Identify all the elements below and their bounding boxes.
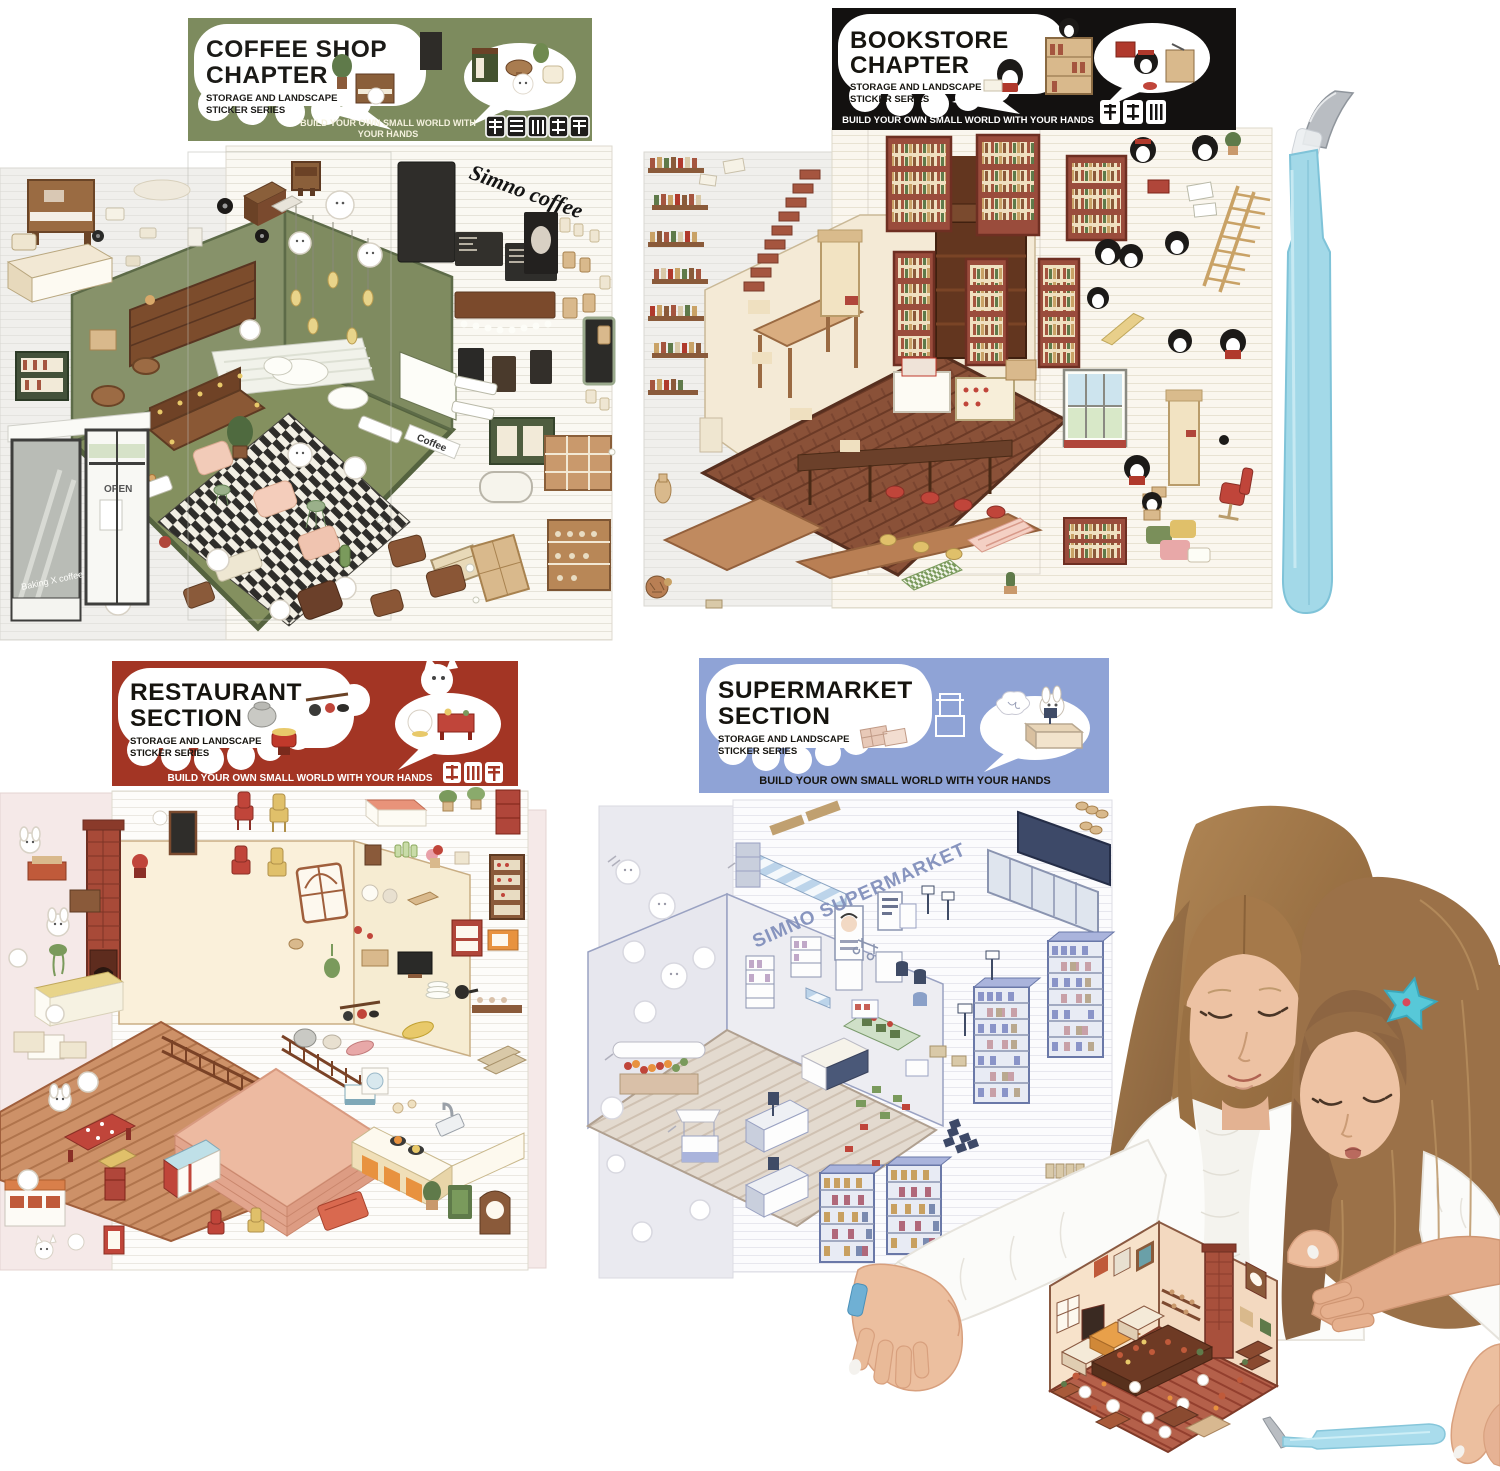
- svg-text:OPEN: OPEN: [104, 484, 132, 495]
- svg-text:STICKER SERIES: STICKER SERIES: [718, 746, 797, 757]
- svg-text:BUILD YOUR OWN SMALL WORLD WIT: BUILD YOUR OWN SMALL WORLD WITH YOUR HAN…: [842, 115, 1094, 126]
- svg-text:STORAGE AND LANDSCAPE: STORAGE AND LANDSCAPE: [206, 93, 337, 104]
- svg-text:CHAPTER: CHAPTER: [850, 52, 970, 79]
- svg-text:RESTAURANT: RESTAURANT: [130, 679, 302, 706]
- svg-text:BOOKSTORE: BOOKSTORE: [850, 27, 1009, 54]
- svg-text:BUILD YOUR OWN SMALL WORLD WIT: BUILD YOUR OWN SMALL WORLD WITH YOUR HAN…: [759, 775, 1051, 787]
- svg-text:SECTION: SECTION: [718, 703, 830, 730]
- svg-text:SECTION: SECTION: [130, 705, 242, 732]
- svg-text:STICKER SERIES: STICKER SERIES: [850, 94, 929, 105]
- svg-text:BUILD YOUR OWN SMALL WORLD WIT: BUILD YOUR OWN SMALL WORLD WITH: [300, 118, 476, 128]
- svg-text:STORAGE AND LANDSCAPE: STORAGE AND LANDSCAPE: [850, 82, 981, 93]
- svg-text:CHAPTER: CHAPTER: [206, 62, 328, 89]
- svg-text:SUPERMARKET: SUPERMARKET: [718, 677, 913, 704]
- svg-text:BUILD YOUR OWN SMALL WORLD WIT: BUILD YOUR OWN SMALL WORLD WITH YOUR HAN…: [168, 773, 433, 784]
- svg-text:STORAGE AND LANDSCAPE: STORAGE AND LANDSCAPE: [718, 734, 849, 745]
- svg-text:COFFEE SHOP: COFFEE SHOP: [206, 36, 387, 63]
- svg-text:STICKER SERIES: STICKER SERIES: [130, 748, 209, 759]
- svg-text:STICKER SERIES: STICKER SERIES: [206, 105, 285, 116]
- svg-text:STORAGE AND LANDSCAPE: STORAGE AND LANDSCAPE: [130, 736, 261, 747]
- svg-text:YOUR HANDS: YOUR HANDS: [358, 129, 419, 139]
